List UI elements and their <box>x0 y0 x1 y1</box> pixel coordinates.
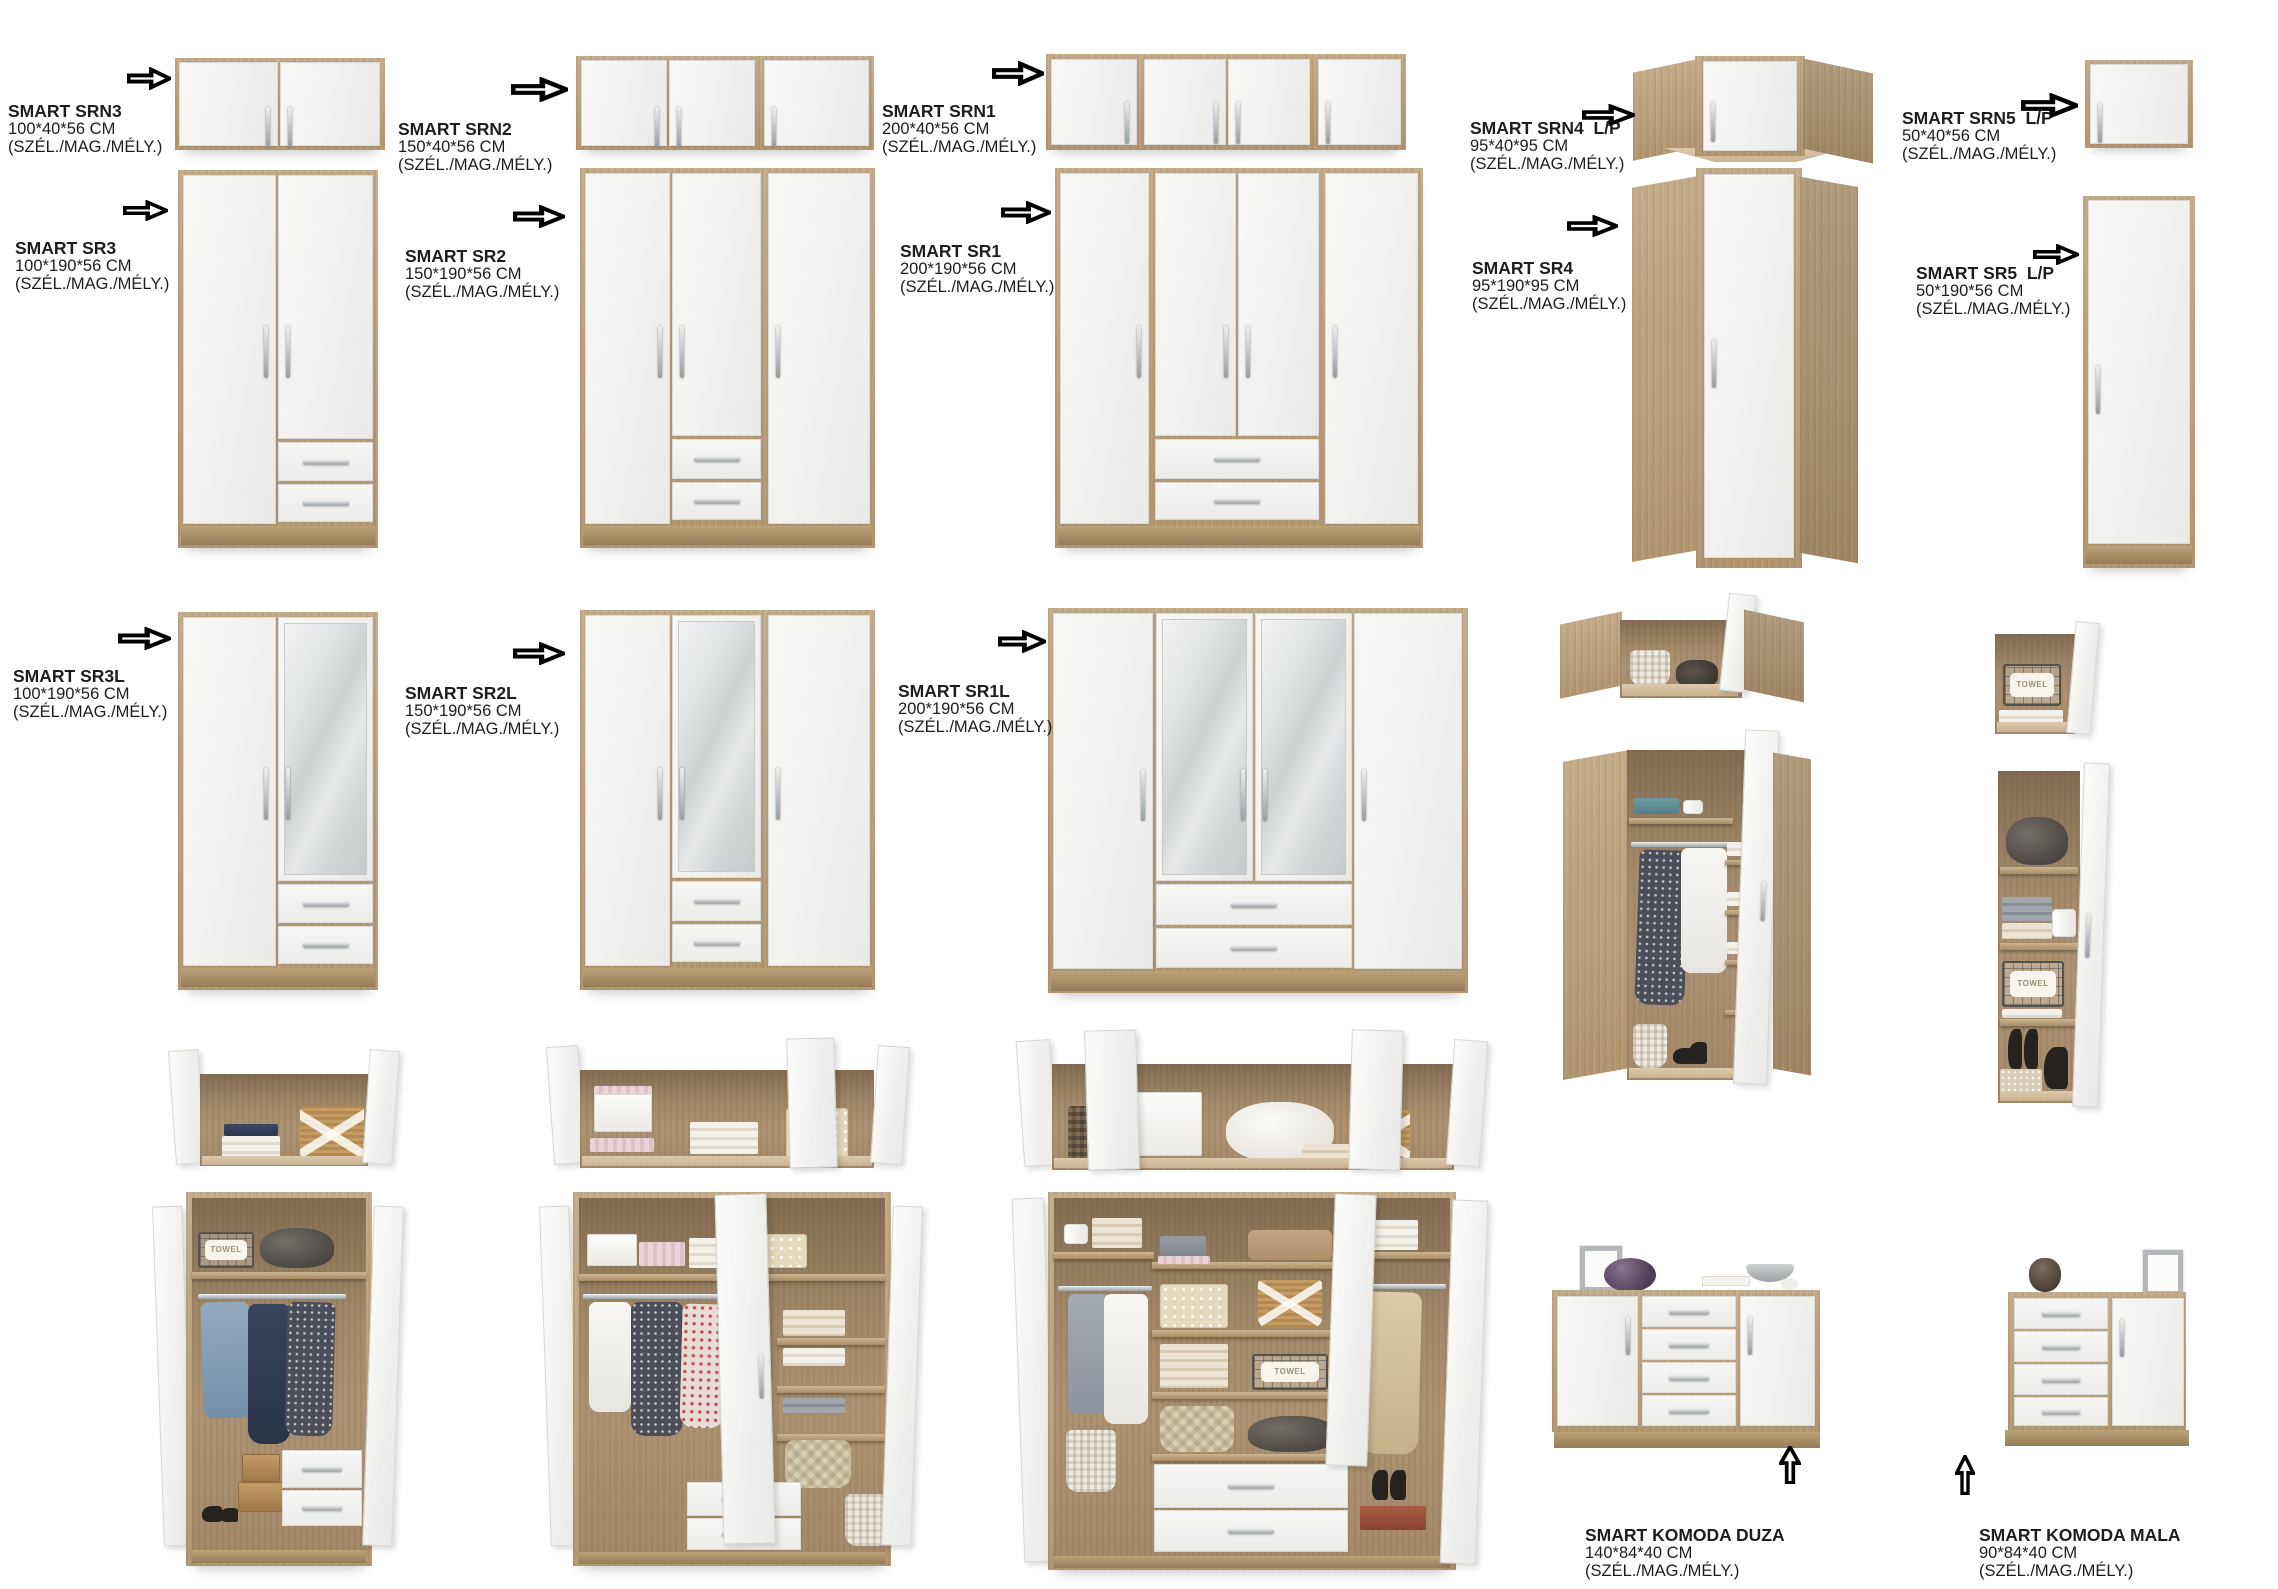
product-image-srn2 <box>576 56 874 150</box>
product-image-srn3 <box>175 58 385 150</box>
wardrobe-carcass: TOWEL <box>1048 1192 1456 1570</box>
hanging-shirt <box>1104 1294 1148 1424</box>
jute-basket <box>300 1106 364 1162</box>
drawer <box>1642 1395 1736 1426</box>
arrow-right-icon <box>118 627 171 650</box>
folded-blanket <box>1158 1256 1210 1264</box>
hanging-shirt <box>1681 848 1727 973</box>
dimension-legend: (SZÉL./MAG./MÉLY.) <box>882 136 1036 158</box>
shelf <box>777 1338 885 1345</box>
dimension-legend: (SZÉL./MAG./MÉLY.) <box>1902 143 2056 165</box>
plinth <box>181 968 375 987</box>
wardrobe-door <box>280 62 380 146</box>
dimension-legend: (SZÉL./MAG./MÉLY.) <box>1979 1560 2133 1582</box>
open-door <box>870 1045 910 1165</box>
wardrobe-door <box>1354 613 1462 969</box>
arrow-right-icon <box>2021 93 2078 118</box>
plinth <box>2086 546 2192 564</box>
wardrobe-door <box>278 175 373 439</box>
plinth <box>1058 526 1420 545</box>
folded-towels <box>783 1310 845 1336</box>
wardrobe-interior: TOWEL <box>192 1198 366 1550</box>
wardrobe-door <box>585 615 670 966</box>
dresser-door <box>1557 1296 1638 1426</box>
wardrobe-door <box>179 62 278 146</box>
product-image-sr2l <box>580 610 875 990</box>
folded-towels <box>1160 1344 1228 1388</box>
drawer <box>278 884 373 923</box>
dimension-legend: (SZÉL./MAG./MÉLY.) <box>1585 1560 1739 1582</box>
product-label-srn3: SMART SRN3 100*40*56 CM (SZÉL./MAG./MÉLY… <box>8 64 26 154</box>
arrow-right-icon <box>1001 201 1051 224</box>
dimension-legend: (SZÉL./MAG./MÉLY.) <box>13 701 167 723</box>
decor-bowl <box>1780 1278 1798 1290</box>
product-label-sr2: SMART SR2 150*190*56 CM (SZÉL./MAG./MÉLY… <box>405 209 423 299</box>
drawer <box>2014 1331 2108 1362</box>
plinth <box>1054 1556 1450 1568</box>
wardrobe-door <box>1155 173 1236 436</box>
wardrobe-door <box>1144 59 1226 145</box>
open-door <box>714 1193 775 1544</box>
shoes <box>2008 1029 2022 1069</box>
wardrobe-door <box>585 173 670 524</box>
wardrobe-door <box>768 615 870 966</box>
hanging-rail <box>1058 1286 1152 1291</box>
wardrobe-door <box>183 617 276 966</box>
folded-towels <box>1092 1218 1142 1248</box>
drawer <box>1642 1362 1736 1393</box>
wardrobe-door <box>2090 64 2188 144</box>
corner-side-panel <box>1563 750 1629 1080</box>
storage-basket <box>1066 1430 1116 1492</box>
shelf <box>192 1272 366 1279</box>
folded-towels <box>224 1124 278 1136</box>
wardrobe-door <box>581 60 667 146</box>
corner-side-panel <box>1744 610 1804 703</box>
product-image-srn5-open: TOWEL <box>1995 622 2097 742</box>
wardrobe-door <box>183 175 276 524</box>
hanging-rail <box>583 1294 725 1299</box>
storage-box <box>594 1094 652 1132</box>
product-label-komoda-duza: SMART KOMODA DUZA 140*84*40 CM (SZÉL./MA… <box>1585 1488 1603 1578</box>
product-image-sr5 <box>2083 196 2195 568</box>
storage-box <box>1064 1224 1088 1244</box>
wire-basket: TOWEL <box>2003 664 2061 706</box>
cabinet-interior <box>200 1074 368 1166</box>
dimension-legend: (SZÉL./MAG./MÉLY.) <box>1472 293 1626 315</box>
dresser-door <box>1740 1296 1815 1426</box>
storage-box <box>1134 1092 1202 1156</box>
drawer <box>1154 1510 1348 1552</box>
arrow-right-icon <box>2033 244 2079 265</box>
wardrobe-door <box>1051 59 1137 145</box>
product-image-srn3-open <box>172 1042 396 1170</box>
product-image-srn1-open <box>1020 1028 1485 1176</box>
hanging-dress <box>631 1302 683 1436</box>
shelf <box>1152 1454 1346 1461</box>
product-image-sr1l <box>1048 608 1468 993</box>
product-image-sr1 <box>1055 168 1423 548</box>
arrow-right-icon <box>998 630 1046 653</box>
shoes <box>1390 1470 1406 1500</box>
drawer <box>282 1450 362 1488</box>
shelf <box>777 1386 885 1393</box>
drawer <box>1156 928 1352 968</box>
corner-side-panel <box>1773 753 1811 1076</box>
product-label-srn5: SMART SRN5 L/P 50*40*56 CM (SZÉL./MAG./M… <box>1902 71 1920 161</box>
plinth <box>583 968 872 987</box>
product-image-sr2 <box>580 168 875 548</box>
corner-side-panel <box>1560 611 1622 698</box>
drawer <box>2014 1298 2108 1329</box>
drawer <box>278 484 373 522</box>
folded-towels <box>2002 897 2052 921</box>
hanging-shirt <box>589 1302 631 1412</box>
drawer <box>1154 1464 1348 1508</box>
product-image-komoda-mala <box>2003 1250 2239 1454</box>
arrow-up-icon <box>1955 1455 1975 1495</box>
handbag <box>785 1440 851 1488</box>
product-image-sr1-open: TOWEL <box>1018 1192 1484 1572</box>
drawer <box>1156 884 1352 925</box>
mirror-door <box>278 617 373 881</box>
wardrobe-door <box>1238 173 1319 436</box>
mirror-door <box>672 615 761 878</box>
cabinet-interior: TOWEL <box>1995 634 2075 734</box>
open-door <box>786 1037 837 1168</box>
shelf <box>2000 943 2078 950</box>
product-image-sr3 <box>178 170 378 548</box>
shoes <box>202 1506 222 1522</box>
wardrobe-door <box>2088 200 2190 544</box>
storage-box <box>590 1138 654 1152</box>
plinth <box>583 526 872 545</box>
wardrobe-carcass: TOWEL <box>186 1192 372 1566</box>
plinth <box>1051 971 1465 991</box>
drawer <box>672 881 761 921</box>
dresser-body <box>1552 1290 1820 1432</box>
shoes <box>220 1508 238 1522</box>
dresser-door <box>2112 1298 2184 1426</box>
wire-basket: TOWEL <box>2002 961 2064 1007</box>
product-label-komoda-mala: SMART KOMODA MALA 90*84*40 CM (SZÉL./MAG… <box>1979 1488 1997 1578</box>
shelf <box>1054 1252 1154 1259</box>
fur-blanket <box>2006 817 2068 865</box>
drawer <box>672 439 761 479</box>
shelf <box>1152 1330 1346 1337</box>
arrow-up-icon <box>1779 1446 1801 1484</box>
fur-blanket <box>1248 1416 1336 1452</box>
shoes <box>2044 1047 2068 1089</box>
product-label-sr4: SMART SR4 95*190*95 CM (SZÉL./MAG./MÉLY.… <box>1472 221 1490 311</box>
product-image-sr5-open: TOWEL <box>1998 763 2102 1111</box>
shoe-box <box>1360 1506 1426 1530</box>
storage-box <box>2052 909 2076 937</box>
plinth <box>2005 1430 2189 1446</box>
folded-blanket <box>1633 798 1679 814</box>
decor-picture-frame <box>2143 1250 2183 1296</box>
shoes <box>1689 1042 1707 1064</box>
storage-basket <box>1630 650 1670 686</box>
wardrobe-door <box>1228 59 1310 145</box>
shoes <box>1372 1470 1388 1500</box>
shelf <box>1152 1392 1346 1399</box>
product-image-sr2-open <box>545 1192 917 1568</box>
open-door <box>1084 1029 1140 1170</box>
wire-basket: TOWEL <box>1252 1354 1328 1390</box>
towel-pillow: TOWEL <box>2010 971 2056 998</box>
drawer <box>1642 1296 1736 1327</box>
wardrobe-interior: TOWEL <box>1998 771 2080 1103</box>
product-label-sr3: SMART SR3 100*190*56 CM (SZÉL./MAG./MÉLY… <box>15 201 33 291</box>
hanging-dress <box>284 1301 335 1436</box>
wardrobe-door <box>768 173 870 524</box>
towel-pillow: TOWEL <box>2010 673 2053 697</box>
arrow-right-icon <box>127 67 171 90</box>
wooden-box <box>238 1482 284 1512</box>
hanging-rail <box>198 1294 346 1299</box>
product-label-sr1: SMART SR1 200*190*56 CM (SZÉL./MAG./MÉLY… <box>900 204 918 294</box>
storage-box <box>1683 800 1703 814</box>
mirror-door <box>1156 613 1253 881</box>
drawer <box>672 482 761 520</box>
product-image-sr4 <box>1632 168 1858 578</box>
open-door <box>362 1049 400 1165</box>
plinth <box>192 1550 366 1563</box>
dimension-legend: (SZÉL./MAG./MÉLY.) <box>15 273 169 295</box>
shelf <box>1629 818 1733 824</box>
arrow-right-icon <box>513 205 565 228</box>
wardrobe-door <box>1318 59 1401 145</box>
dresser-body <box>2008 1292 2186 1430</box>
decor-vase <box>1604 1258 1656 1292</box>
storage-box <box>587 1234 637 1266</box>
corner-side-panel <box>1633 59 1697 161</box>
wardrobe-door <box>1060 173 1149 524</box>
wardrobe-door <box>1053 613 1153 969</box>
dimension-legend: (SZÉL./MAG./MÉLY.) <box>405 718 559 740</box>
cabinet-bottom <box>1997 722 2073 732</box>
corner-side-panel <box>1803 59 1873 164</box>
arrow-right-icon <box>1567 215 1618 237</box>
dimension-legend: (SZÉL./MAG./MÉLY.) <box>1916 298 2070 320</box>
shoes <box>2024 1029 2038 1069</box>
fur-blanket <box>260 1228 334 1268</box>
dimension-legend: (SZÉL./MAG./MÉLY.) <box>900 276 1054 298</box>
product-label-sr1l: SMART SR1L 200*190*56 CM (SZÉL./MAG./MÉL… <box>898 644 916 734</box>
wardrobe-door <box>1325 173 1418 524</box>
product-image-srn4-open <box>1560 594 1805 718</box>
folded-towels <box>2002 1009 2062 1018</box>
product-label-srn4: SMART SRN4 L/P 95*40*95 CM (SZÉL./MAG./M… <box>1470 81 1488 171</box>
folded-towels <box>783 1348 845 1366</box>
shelf <box>2000 867 2078 874</box>
drawer <box>2014 1397 2108 1426</box>
drawer <box>282 1490 362 1526</box>
storage-basket <box>1633 1024 1667 1068</box>
folded-towels <box>2002 923 2052 939</box>
wardrobe-interior: TOWEL <box>1054 1198 1450 1556</box>
wardrobe-door <box>764 60 869 146</box>
wire-basket: TOWEL <box>198 1232 254 1268</box>
wardrobe-door <box>1703 61 1797 151</box>
plinth <box>181 526 375 545</box>
cabinet-front <box>1696 168 1802 568</box>
corner-side-panel <box>1800 177 1858 563</box>
open-door <box>1348 1029 1404 1170</box>
mirror-door <box>1255 613 1352 881</box>
hanging-shirt <box>200 1301 251 1418</box>
cabinet-bottom <box>2000 1091 2078 1101</box>
towel-pillow: TOWEL <box>205 1240 247 1261</box>
product-image-sr3-open: TOWEL <box>158 1192 398 1568</box>
drawer <box>1642 1329 1736 1360</box>
product-image-srn4 <box>1633 56 1875 164</box>
cabinet-bottom <box>202 1156 366 1165</box>
shelf <box>2000 1019 2078 1026</box>
folded-blanket <box>639 1242 685 1266</box>
arrow-right-icon <box>123 200 168 221</box>
dimension-legend: (SZÉL./MAG./MÉLY.) <box>1470 153 1624 175</box>
wardrobe-door <box>1704 174 1794 558</box>
catalog-canvas: TOWEL TOWEL <box>0 0 2278 1589</box>
wardrobe-door <box>669 60 755 146</box>
decor-vase <box>2029 1258 2061 1292</box>
drawer <box>2014 1364 2108 1395</box>
drawer <box>278 926 373 964</box>
towel-pillow: TOWEL <box>1261 1362 1319 1383</box>
drawer <box>672 924 761 962</box>
arrow-right-icon <box>992 61 1044 86</box>
product-image-srn5 <box>2085 60 2193 148</box>
product-image-srn2-open <box>550 1036 906 1172</box>
jute-basket <box>1258 1280 1322 1328</box>
folded-towels <box>690 1122 758 1154</box>
dimension-legend: (SZÉL./MAG./MÉLY.) <box>8 136 162 158</box>
wardrobe-interior <box>1627 750 1747 1080</box>
storage-box <box>1160 1284 1228 1328</box>
product-image-srn1 <box>1046 54 1406 150</box>
product-label-sr5: SMART SR5 L/P 50*190*56 CM (SZÉL./MAG./M… <box>1916 226 1934 316</box>
drawer <box>278 442 373 481</box>
wooden-box <box>242 1454 280 1482</box>
cabinet-front <box>1695 56 1805 156</box>
folded-towels <box>783 1398 845 1414</box>
product-label-sr3l: SMART SR3L 100*190*56 CM (SZÉL./MAG./MÉL… <box>13 629 31 719</box>
plinth <box>579 1552 885 1564</box>
product-image-sr3l <box>178 612 378 990</box>
product-label-srn1: SMART SRN1 200*40*56 CM (SZÉL./MAG./MÉLY… <box>882 64 900 154</box>
product-label-sr2l: SMART SR2L 150*190*56 CM (SZÉL./MAG./MÉL… <box>405 646 423 736</box>
cabinet-bottom <box>1629 1068 1741 1078</box>
wardrobe-door <box>672 173 761 436</box>
product-label-srn2: SMART SRN2 150*40*56 CM (SZÉL./MAG./MÉLY… <box>398 82 416 172</box>
dimension-legend: (SZÉL./MAG./MÉLY.) <box>898 716 1052 738</box>
folded-blanket <box>1248 1230 1332 1260</box>
wardrobe-carcass <box>573 1192 891 1566</box>
open-door <box>1446 1039 1489 1167</box>
handbag <box>1160 1406 1234 1452</box>
dimension-legend: (SZÉL./MAG./MÉLY.) <box>405 281 559 303</box>
decor-books <box>1702 1276 1750 1286</box>
arrow-right-icon <box>1582 104 1635 126</box>
arrow-right-icon <box>513 642 565 665</box>
corner-side-panel <box>1632 176 1698 562</box>
drawer <box>1155 439 1319 479</box>
hanging-rail <box>1631 842 1731 847</box>
arrow-right-icon <box>511 77 568 102</box>
drawer <box>1155 482 1319 520</box>
dimension-legend: (SZÉL./MAG./MÉLY.) <box>398 154 552 176</box>
product-image-sr4-open <box>1563 730 1813 1092</box>
